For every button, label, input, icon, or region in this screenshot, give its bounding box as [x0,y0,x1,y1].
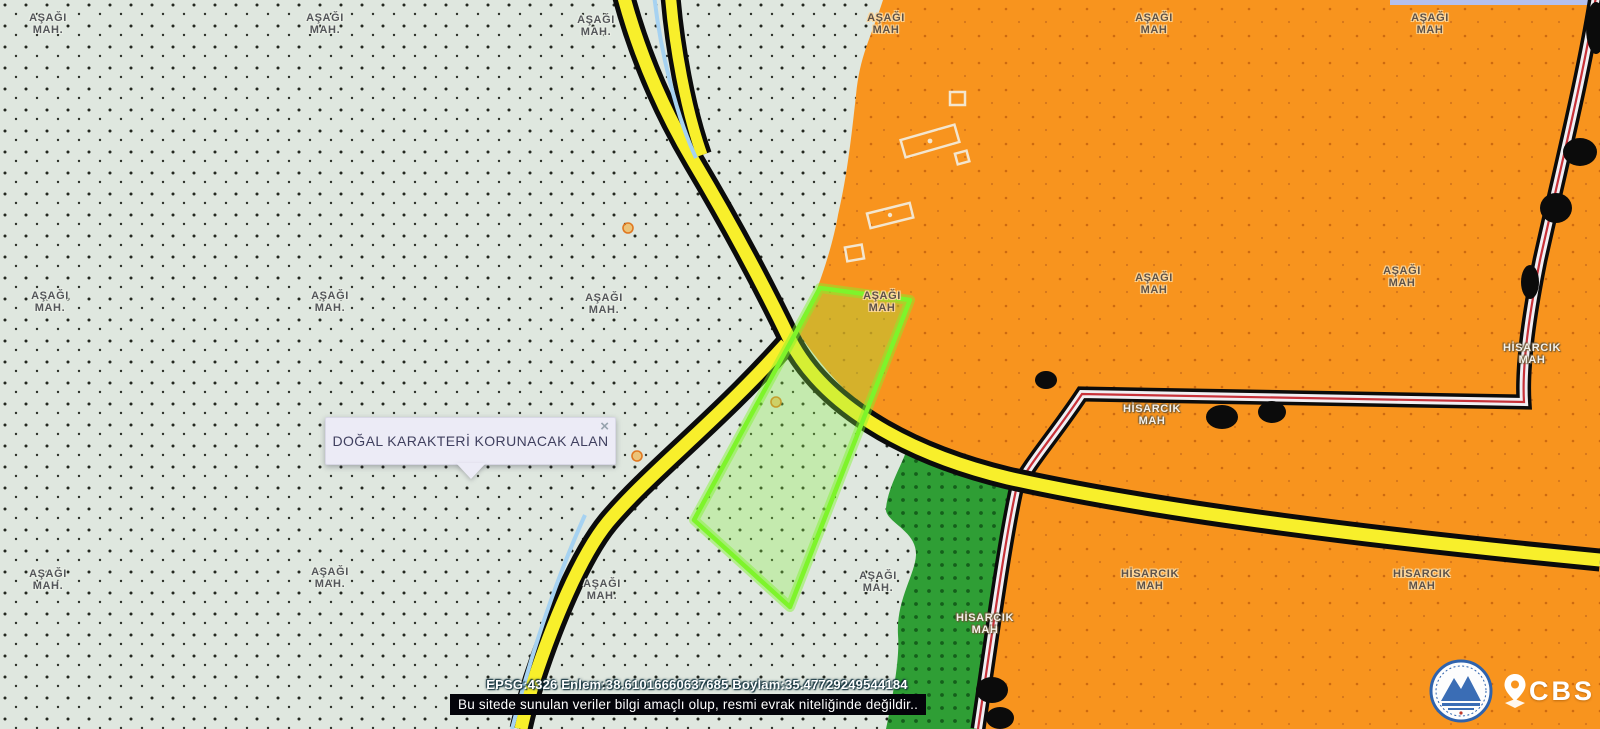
feature-info-popup: DOĞAL KARAKTERİ KORUNACAK ALAN × [325,417,616,465]
disclaimer-text: Bu sitede sunulan veriler bilgi amaçlı o… [458,697,918,712]
popup-pointer [456,463,486,479]
top-edge-line [1390,0,1600,5]
feature-info-text: DOĞAL KARAKTERİ KORUNACAK ALAN [333,433,609,449]
map-viewport[interactable]: AŞAĞIMAH. AŞAĞIMAH. AŞAĞIMAH. AŞAĞIMAH A… [0,0,1600,729]
map-canvas[interactable] [0,0,1600,729]
disclaimer-banner: Bu sitede sunulan veriler bilgi amaçlı o… [450,694,926,715]
cbs-app-label: CBS [1529,676,1595,707]
close-icon[interactable]: × [600,419,609,434]
map-pin-icon [1502,673,1529,709]
municipality-logo [1428,658,1494,724]
branding: CBS [1428,656,1598,726]
